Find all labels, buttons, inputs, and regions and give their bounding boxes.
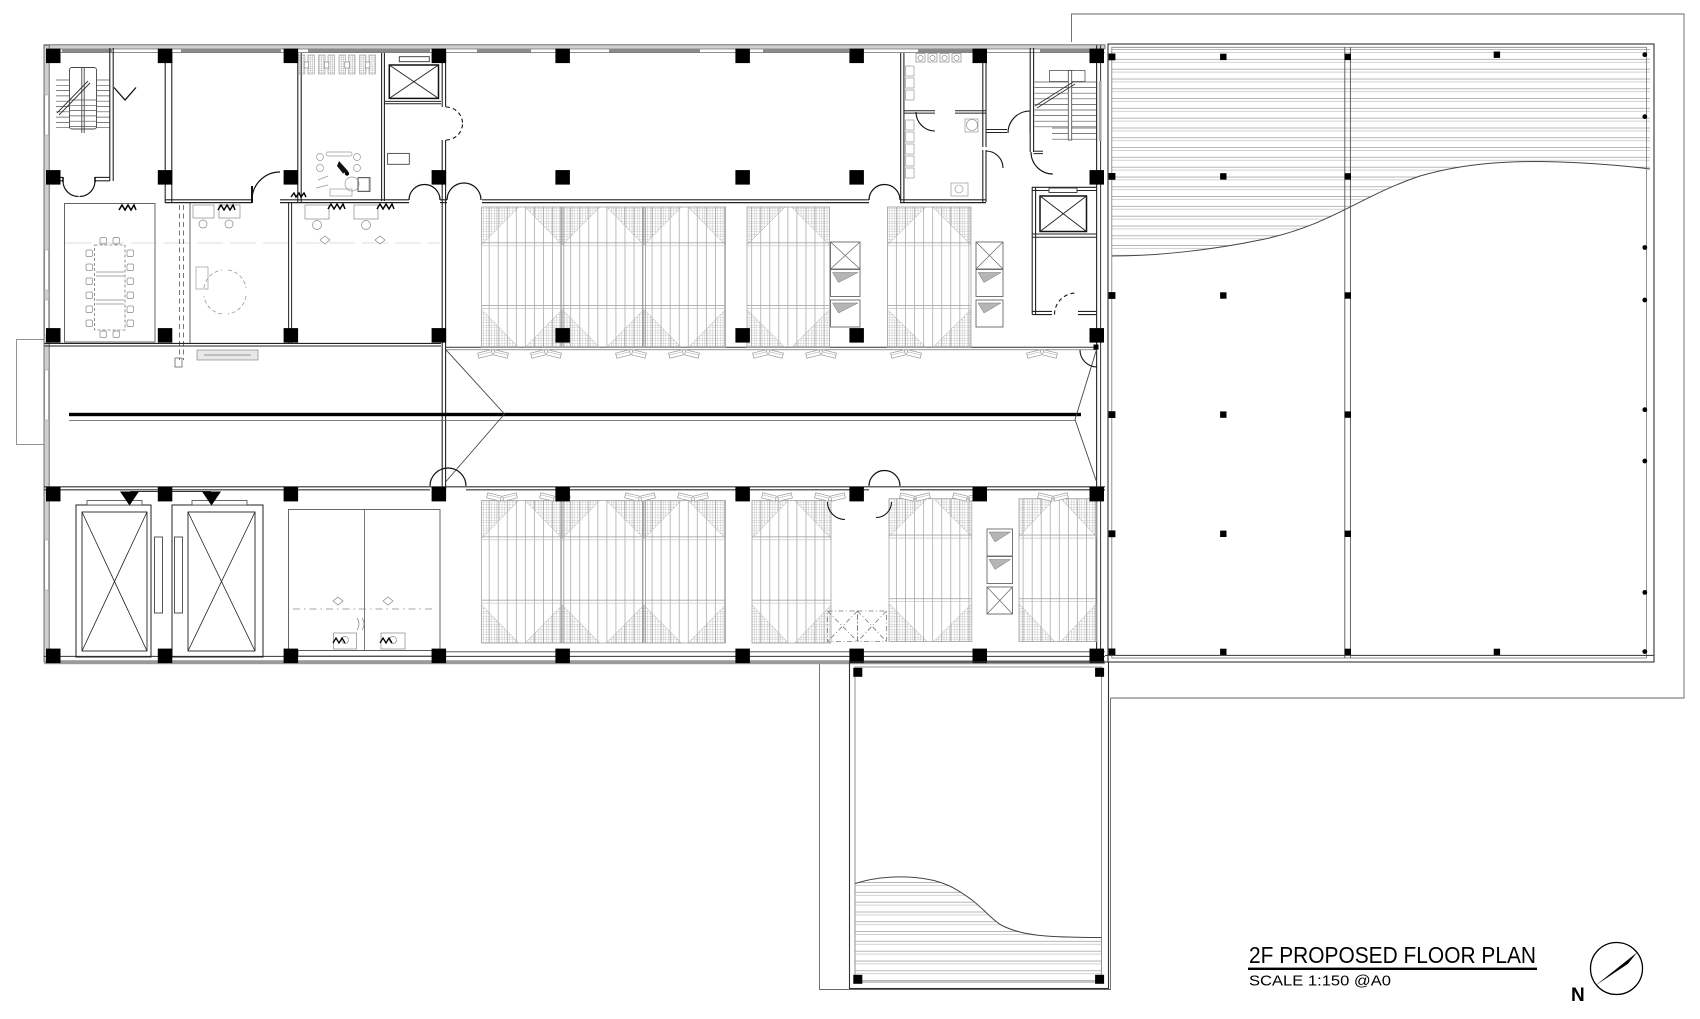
svg-text:N: N — [1571, 985, 1585, 1006]
svg-text:2F PROPOSED FLOOR PLAN: 2F PROPOSED FLOOR PLAN — [1249, 942, 1536, 968]
svg-text:SCALE 1:150 @A0: SCALE 1:150 @A0 — [1249, 974, 1391, 990]
